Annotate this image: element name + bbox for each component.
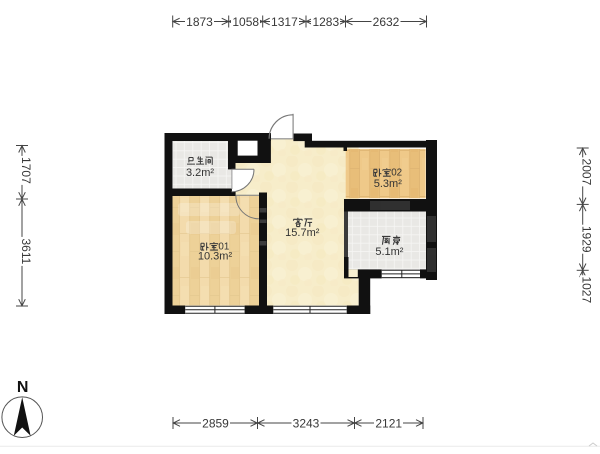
svg-text:3.2m²: 3.2m² [186,167,214,179]
svg-text:2007: 2007 [580,159,594,186]
svg-text:1317: 1317 [271,15,298,29]
svg-text:1929: 1929 [580,226,594,253]
svg-text:3611: 3611 [19,238,33,264]
svg-text:1707: 1707 [19,157,33,184]
svg-text:5.1m²: 5.1m² [375,246,403,258]
svg-text:1027: 1027 [580,276,594,303]
svg-text:2121: 2121 [375,416,402,430]
svg-text:1873: 1873 [186,15,213,29]
svg-text:10.3m²: 10.3m² [198,251,233,263]
svg-text:1283: 1283 [312,15,339,29]
svg-text:2859: 2859 [202,416,229,430]
svg-text:15.7m²: 15.7m² [285,227,320,239]
svg-text:3243: 3243 [293,416,320,430]
svg-text:2632: 2632 [373,15,400,29]
svg-text:N: N [17,379,29,396]
svg-text:5.3m²: 5.3m² [374,178,402,190]
svg-text:1058: 1058 [232,15,259,29]
